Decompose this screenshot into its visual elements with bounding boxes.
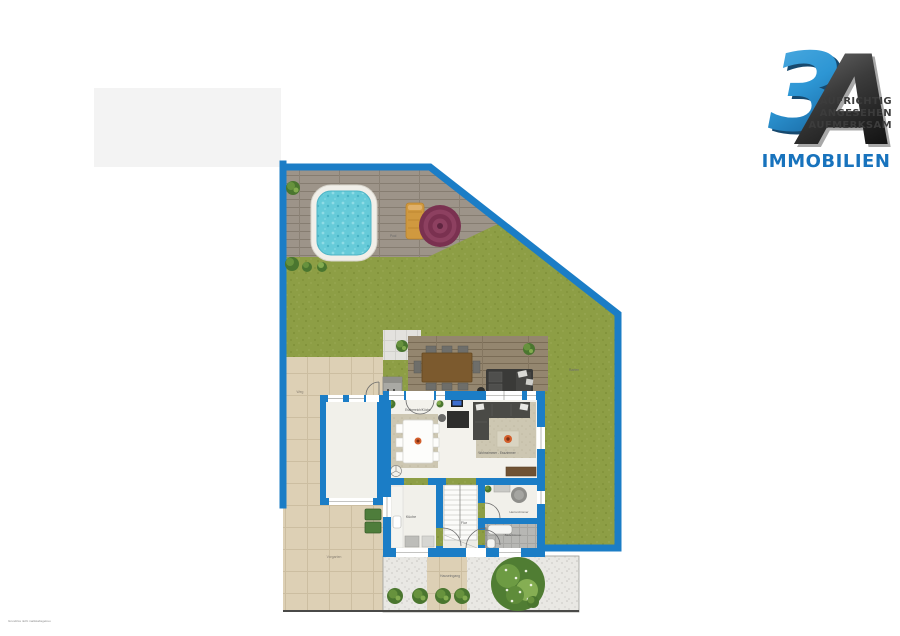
background-block (94, 88, 281, 167)
dining-set (396, 420, 439, 463)
lowboard (506, 467, 536, 476)
svg-text:ANGESEHEN: ANGESEHEN (820, 108, 892, 119)
deck-bush-top (286, 181, 300, 195)
terrace (396, 336, 548, 397)
garage (320, 382, 383, 505)
ceiling-fan-symbol (391, 466, 402, 477)
svg-text:AUFRICHTIG: AUFRICHTIG (820, 96, 892, 107)
plan-disclaimer: Grundriss nicht maßstabsgetreu (8, 619, 51, 623)
label-hauseingang: Hauseingang (440, 574, 460, 578)
walkway (383, 556, 579, 612)
label-flur: Flur (461, 521, 468, 525)
label-herrenzimmer: Herrenzimmer (509, 510, 528, 514)
stairs (444, 485, 477, 548)
coffee-table (497, 431, 519, 447)
logo: 3 3 A A AUFRICHTIG ANGESEHEN AUFMERKSAM … (752, 4, 900, 180)
logo-tagline: AUFRICHTIG ANGESEHEN AUFMERKSAM (808, 96, 892, 131)
svg-text:AUFMERKSAM: AUFMERKSAM (808, 120, 892, 131)
label-weg: Weg (297, 390, 304, 394)
label-badezimmer: Badezimmer (505, 533, 522, 537)
terrace-plant-left (396, 340, 408, 352)
label-kueche: Küche (406, 515, 416, 519)
label-vorgarten: Vorgarten (327, 555, 342, 559)
parasol (419, 205, 461, 247)
terrace-plant-right (523, 343, 535, 355)
logo-brand: IMMOBILIEN (762, 151, 891, 172)
walkway-bush-right (527, 596, 539, 608)
label-wohnzimmer: Wohnzimmer - Esszimmer (478, 451, 516, 455)
floorplan-page: Pool Garten Weg Vorgarten Hauseingang Es… (0, 0, 900, 636)
label-essbereich: Essbereich/Küche (405, 408, 431, 412)
desk-plant (437, 401, 444, 408)
pool (311, 185, 377, 261)
label-pool: Pool (390, 234, 397, 238)
label-garten: Garten (569, 368, 579, 372)
